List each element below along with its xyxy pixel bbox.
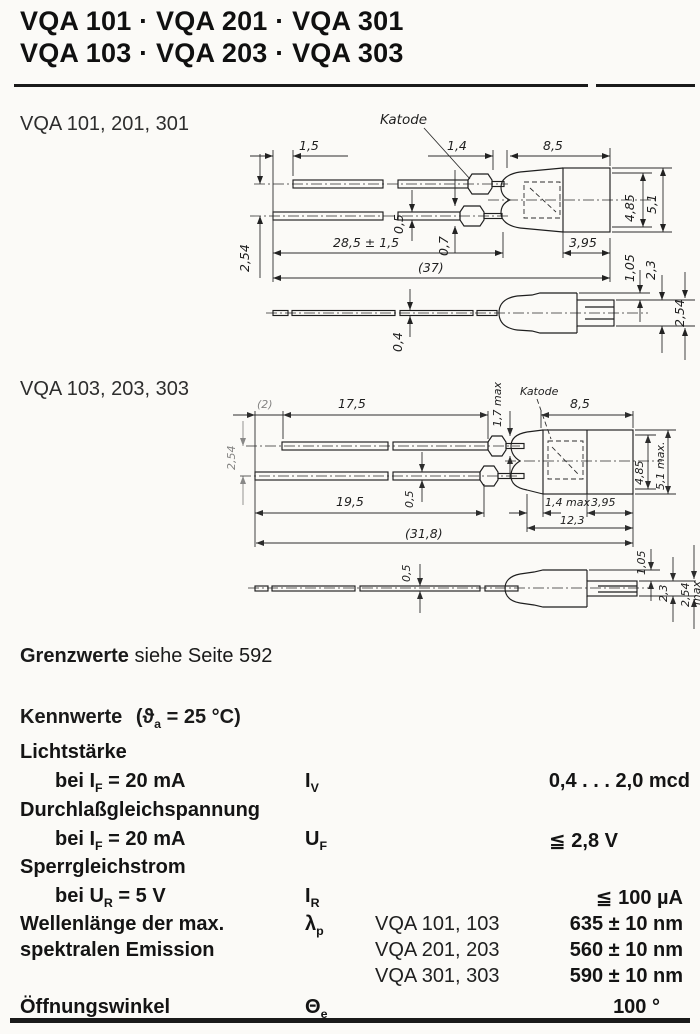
title-line-2: VQA 103 · VQA 203 · VQA 303 <box>20 37 404 69</box>
row-sperr-heading: Sperrgleichstrom <box>20 856 186 879</box>
drawing1-dimensions: 1,5 2,54 Katode 1,4 8,5 <box>237 112 672 282</box>
value-iv: 0,4 . . . 2,0 mcd <box>549 770 690 793</box>
page-title: VQA 101 · VQA 201 · VQA 301 VQA 103 · VQ… <box>20 5 404 69</box>
row-durchlass-condition: bei IF = 20 mA <box>55 828 185 851</box>
dim-bottom-lead-len: 19,5 <box>336 494 364 509</box>
dim-nub-height: 2,3 <box>657 585 670 603</box>
drawing-vqa-101-201-301: 1,5 2,54 Katode 1,4 8,5 <box>0 110 700 375</box>
grenzwerte-heading: Grenzwerte <box>20 645 129 667</box>
kennwerte-line: Kennwerte (ϑa = 25 °C) <box>20 706 241 729</box>
wavelength-value-1: 635 ± 10 nm <box>570 913 683 936</box>
datasheet-page: VQA 101 · VQA 201 · VQA 301 VQA 103 · VQ… <box>0 0 700 1034</box>
dim-lead-offset: (2) <box>257 398 273 411</box>
dim-crimp-len: 1,4 <box>447 138 467 153</box>
wavelength-models-1: VQA 101, 103 <box>375 913 500 936</box>
row-sperr-condition: bei UR = 5 V <box>55 885 166 908</box>
dim-side-lead-thickness: 0,4 <box>390 332 405 352</box>
drawing-vqa-103-203-303: Katode (2) 17,5 1,7 max <box>0 375 700 635</box>
wavelength-value-3: 590 ± 10 nm <box>570 965 683 988</box>
dim-lead-thickness: 0,5 <box>391 214 406 234</box>
centerlines <box>240 446 662 588</box>
dim-lead-offset: 1,5 <box>299 138 319 153</box>
side-view-dimensions: 0,5 1,05 2,3 2,54 max <box>400 545 700 629</box>
dim-nub-height: 2,3 <box>643 260 658 280</box>
dim-overall-len: (31,8) <box>405 526 443 541</box>
dim-nub-max: 2,54 <box>672 299 687 327</box>
symbol-iv: IV <box>305 770 319 793</box>
row-lichtstaerke-heading: Lichtstärke <box>20 741 127 764</box>
dim-crimp-thickness: 1,7 max <box>491 382 504 427</box>
bottom-rule <box>10 1018 690 1023</box>
body-internal-outline <box>537 399 583 479</box>
dim-cap-len: 3,95 <box>569 235 597 250</box>
dim-body-total: 12,3 <box>560 514 585 527</box>
wavelength-models-3: VQA 301, 303 <box>375 965 500 988</box>
dim-body-len: 8,5 <box>570 396 590 411</box>
dim-nub-max-suffix: max <box>690 581 700 605</box>
dim-cap-len: 3,95 <box>591 496 616 509</box>
row-oeffnungswinkel-label: Öffnungswinkel <box>20 996 170 1019</box>
dim-body-dia-max: 5,1 max. <box>654 442 667 490</box>
title-line-1: VQA 101 · VQA 201 · VQA 301 <box>20 5 404 37</box>
dim-body-len: 8,5 <box>543 138 563 153</box>
dim-overall-len: (37) <box>418 260 444 275</box>
katode-label: Katode <box>380 112 427 128</box>
row-durchlass-heading: Durchlaßgleichspannung <box>20 799 260 822</box>
symbol-lambda-p: λp <box>305 913 324 936</box>
symbol-uf: UF <box>305 828 327 851</box>
value-theta-e: 100 ° <box>613 996 660 1019</box>
dim-body-dia-max: 5,1 <box>644 194 659 214</box>
symbol-theta-e: Θe <box>305 996 327 1019</box>
dim-nub-offset: 1,05 <box>635 551 648 576</box>
top-view-leads <box>255 436 524 486</box>
dim-lead-thickness: 0,5 <box>403 491 416 509</box>
dim-body-dia: 4,85 <box>633 461 646 486</box>
top-view-body <box>511 430 633 494</box>
dim-body-dia: 4,85 <box>622 194 637 222</box>
dim-nub-offset: 1,05 <box>622 254 637 282</box>
kennwerte-condition: (ϑa = 25 °C) <box>136 706 241 728</box>
kennwerte-heading: Kennwerte <box>20 706 122 728</box>
header-rule-left <box>14 84 588 87</box>
symbol-ir: IR <box>305 885 320 908</box>
grenzwerte-line: Grenzwerte siehe Seite 592 <box>20 645 272 668</box>
dim-lead-pitch: 2,54 <box>237 244 252 272</box>
grenzwerte-text: siehe Seite 592 <box>135 645 273 667</box>
dim-side-lead-thickness: 0,5 <box>400 565 413 583</box>
katode-label: Katode <box>520 385 559 398</box>
dim-lead-pitch: 2,54 <box>225 446 238 471</box>
drawing2-dimensions: (2) 17,5 1,7 max 8,5 2,54 <box>225 382 676 547</box>
dim-top-lead-len: 17,5 <box>338 396 366 411</box>
wavelength-value-2: 560 ± 10 nm <box>570 939 683 962</box>
dim-lead-len: 28,5 ± 1,5 <box>333 235 399 250</box>
row-wellenlaenge-label-1: Wellenlänge der max. <box>20 913 224 936</box>
wavelength-models-2: VQA 201, 203 <box>375 939 500 962</box>
value-ir: ≦ 100 µA <box>596 885 683 910</box>
dim-dome-len: 1,4 max <box>545 496 590 509</box>
row-wellenlaenge-label-2: spektralen Emission <box>20 939 215 962</box>
side-view <box>255 570 637 607</box>
row-lichtstaerke-condition: bei IF = 20 mA <box>55 770 185 793</box>
header-rule-right <box>596 84 695 87</box>
top-view-leads <box>273 174 504 226</box>
value-uf: ≦ 2,8 V <box>549 828 618 853</box>
